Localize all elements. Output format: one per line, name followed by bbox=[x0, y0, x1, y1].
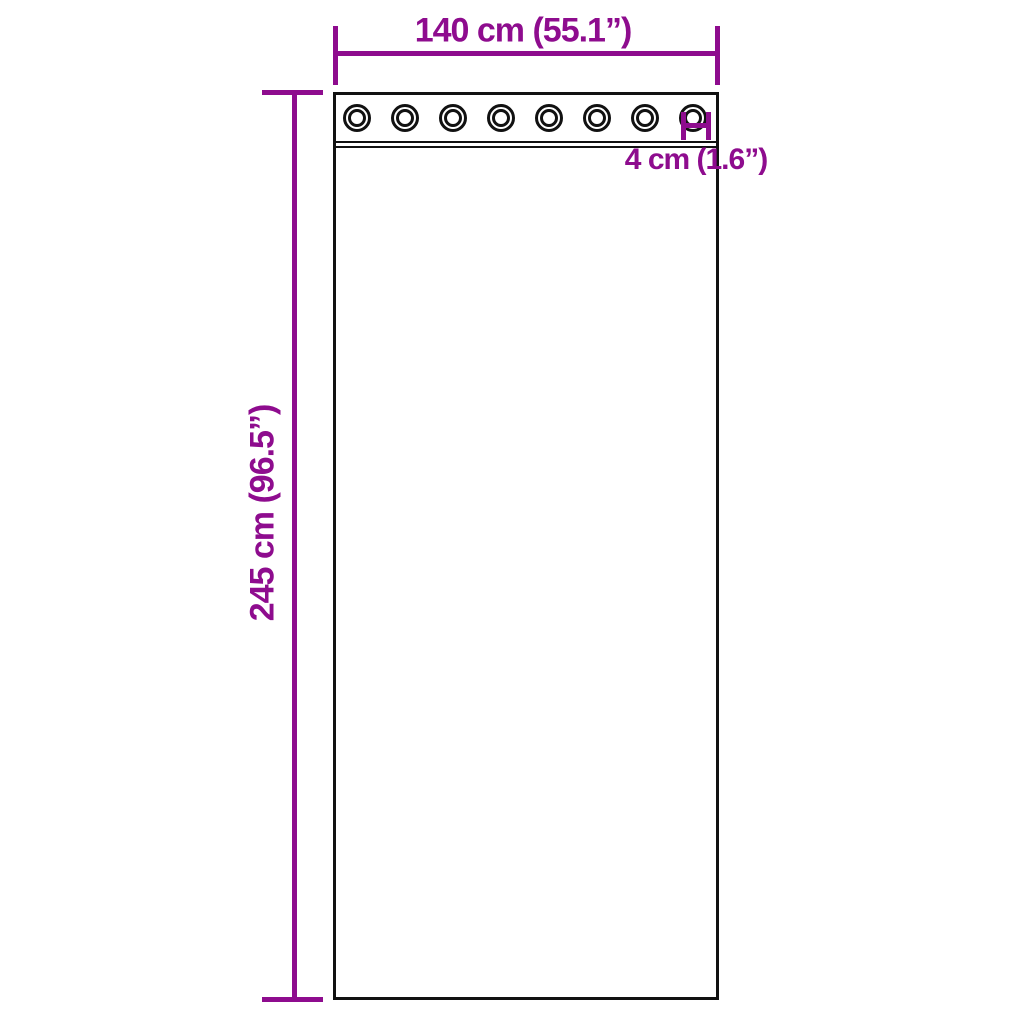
height-dimension-label: 245 cm (96.5”) bbox=[244, 405, 283, 622]
grommet-hole bbox=[492, 109, 510, 127]
dimension-diagram: 140 cm (55.1”) 245 cm (96.5”) 4 cm (1.6”… bbox=[0, 0, 1024, 1024]
grommet-diameter-label: 4 cm (1.6”) bbox=[625, 143, 767, 177]
grommet-hole bbox=[396, 109, 414, 127]
height-dimension-tick-top bbox=[262, 90, 323, 95]
grommet-hole bbox=[636, 109, 654, 127]
height-dimension-tick-bottom bbox=[262, 997, 323, 1002]
curtain-outline bbox=[333, 92, 719, 1000]
width-dimension-line bbox=[336, 51, 716, 56]
grommet-icon bbox=[439, 104, 467, 132]
grommet-hole bbox=[444, 109, 462, 127]
height-dimension-line bbox=[292, 92, 297, 1000]
width-dimension-label: 140 cm (55.1”) bbox=[415, 12, 632, 51]
width-dimension-tick-right bbox=[715, 26, 720, 85]
grommet-bracket-bar bbox=[681, 123, 711, 128]
grommet-hole bbox=[348, 109, 366, 127]
grommet-icon bbox=[631, 104, 659, 132]
grommet-icon bbox=[487, 104, 515, 132]
grommet-icon bbox=[391, 104, 419, 132]
grommet-icon bbox=[343, 104, 371, 132]
grommet-icon bbox=[583, 104, 611, 132]
grommet-icon bbox=[535, 104, 563, 132]
grommet-hole bbox=[540, 109, 558, 127]
width-dimension-tick-left bbox=[333, 26, 338, 85]
grommet-hole bbox=[588, 109, 606, 127]
